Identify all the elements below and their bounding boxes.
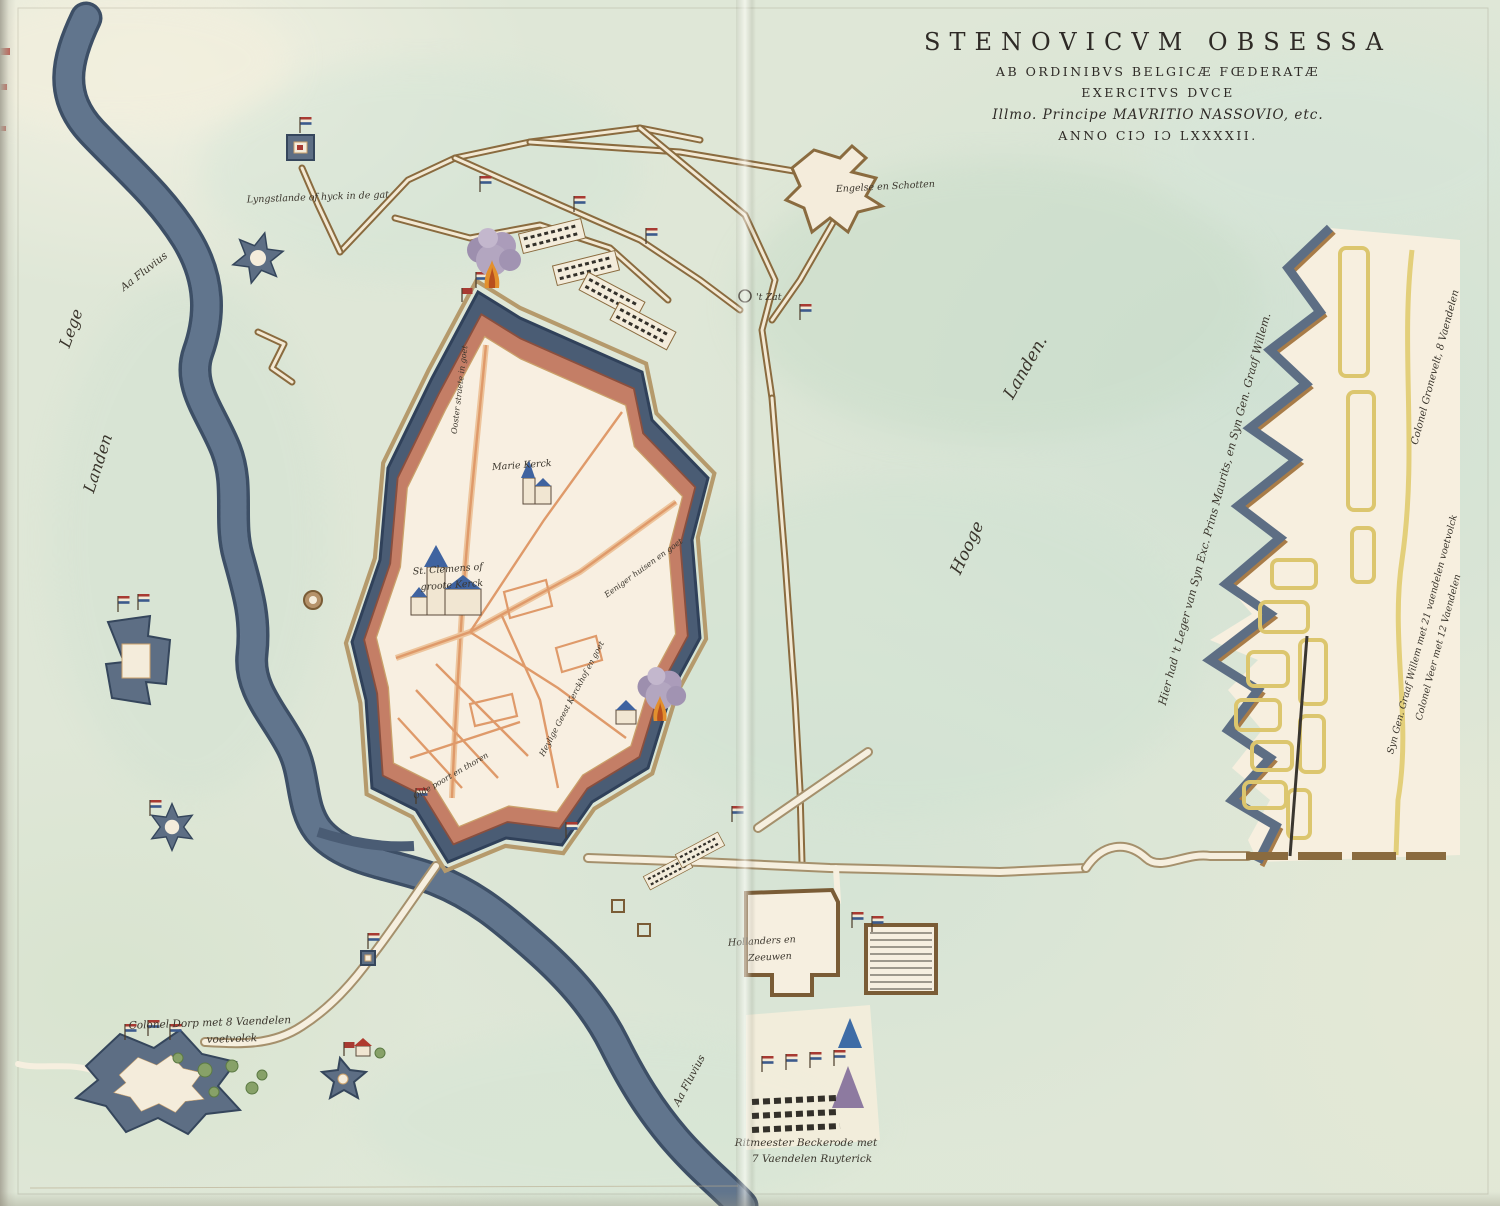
small-work (612, 900, 624, 912)
t-zat-label: 't Zat (756, 292, 782, 303)
city-steenwijk (346, 272, 714, 871)
title-line3: EXERCITVS DVCE (1081, 85, 1234, 100)
map-title: STENOVICVM OBSESSA (924, 28, 1392, 56)
fort-star-small-south (322, 1038, 385, 1098)
redoubt-riverbank (304, 591, 322, 609)
small-work (638, 924, 650, 936)
ritmeester-label-2: 7 Vaendelen Ruyterick (752, 1153, 872, 1165)
title-line5: ANNO CIƆ IƆ LXXXXII. (1057, 128, 1257, 143)
paper-fold-crease (736, 0, 756, 1206)
fort-star-southwest (150, 800, 192, 850)
paper-edge-left (0, 0, 16, 1206)
map-page: STENOVICVM OBSESSA AB ORDINIBVS BELGICÆ … (0, 0, 1500, 1206)
colonel-dorp-label-2: voetvolck (206, 1032, 257, 1046)
lege-label: Lege (55, 306, 87, 351)
colonel-dorp-label-1: Colonel Dorp met 8 Vaendelen (129, 1014, 292, 1032)
title-line2: AB ORDINIBVS BELGICÆ FŒDERATÆ (995, 64, 1320, 79)
title-line4: Illmo. Principe MAVRITIO NASSOVIO, etc. (991, 107, 1323, 123)
horse-lines-square (852, 912, 936, 993)
paper-edge-bottom (0, 1192, 1500, 1206)
